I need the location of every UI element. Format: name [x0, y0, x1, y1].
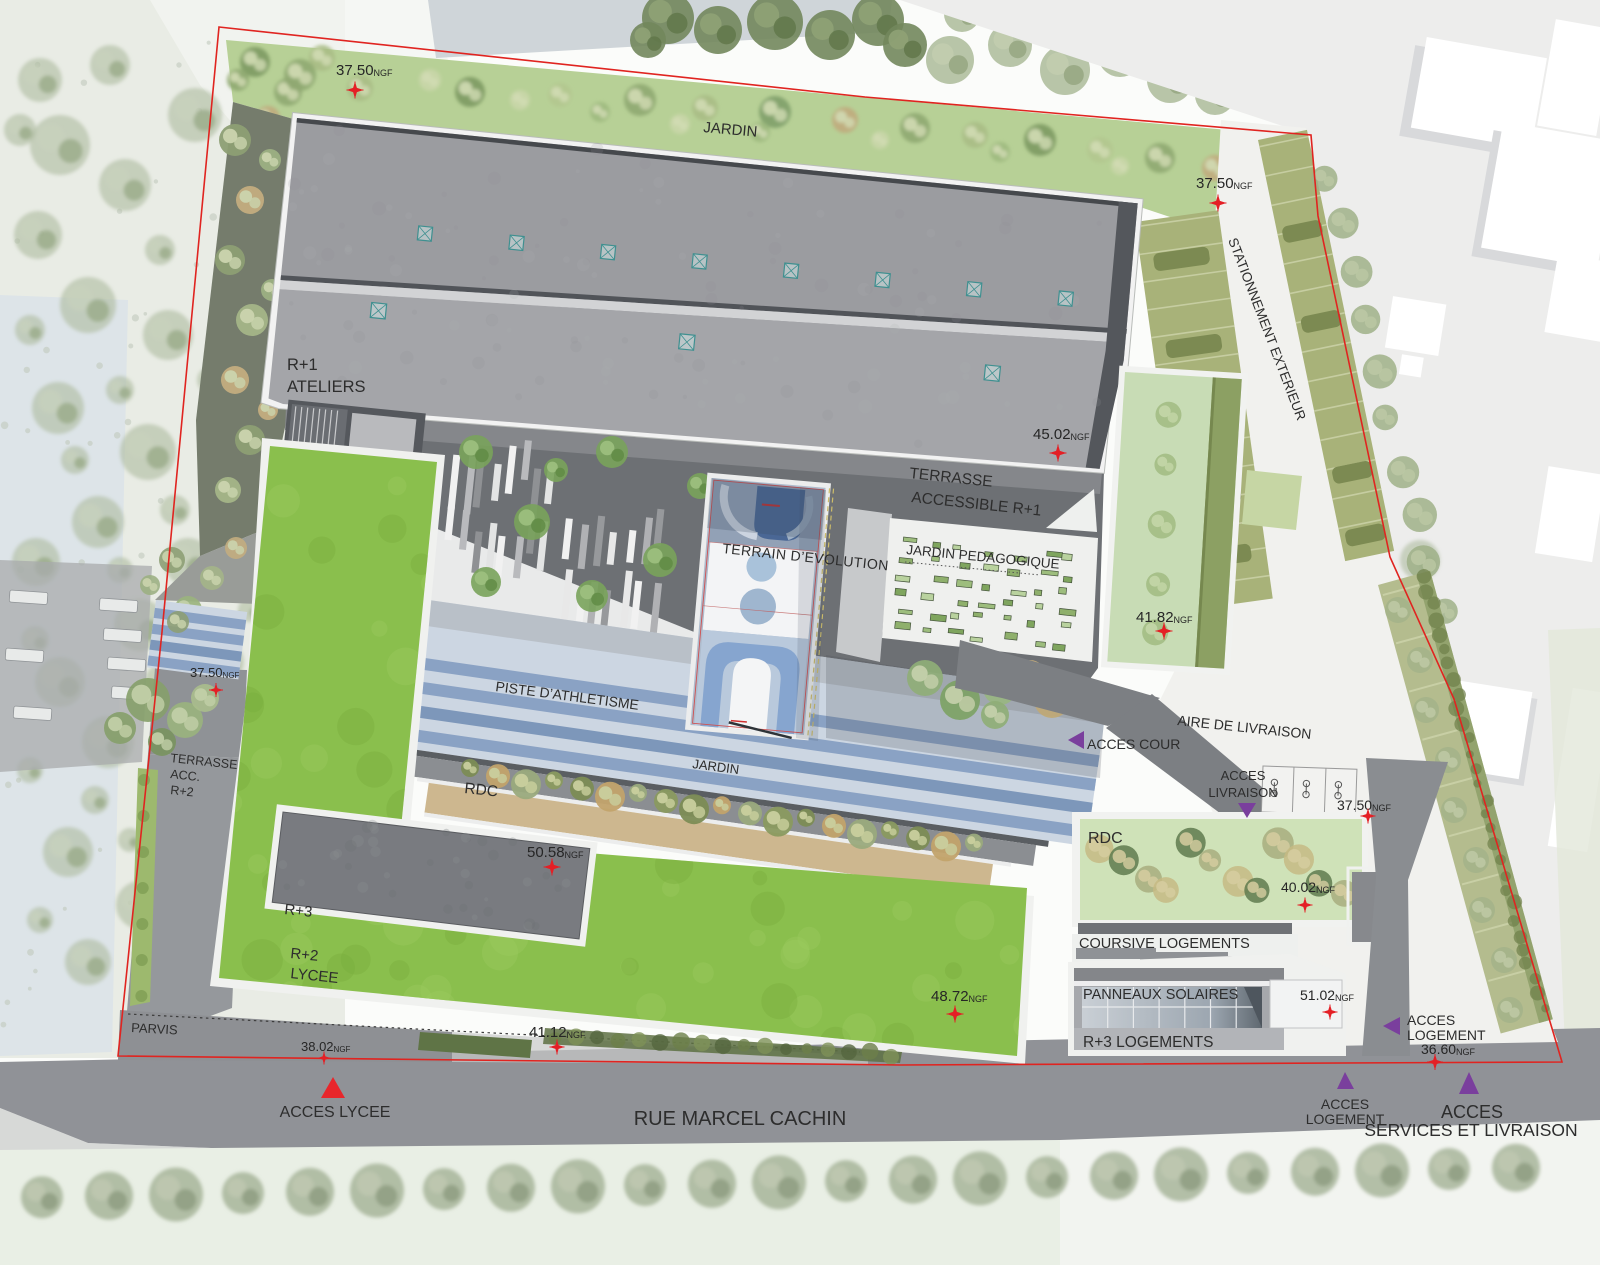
svg-text:LIVRAISON: LIVRAISON [1208, 785, 1277, 800]
svg-text:ACCES: ACCES [1221, 768, 1266, 783]
svg-text:RDC: RDC [464, 780, 499, 800]
svg-text:ACCES COUR: ACCES COUR [1087, 736, 1180, 752]
svg-text:ACCES: ACCES [1321, 1096, 1369, 1112]
svg-text:RUE MARCEL CACHIN: RUE MARCEL CACHIN [634, 1108, 847, 1130]
svg-text:R+3 LOGEMENTS: R+3 LOGEMENTS [1083, 1034, 1214, 1051]
svg-text:SERVICES ET LIVRAISON: SERVICES ET LIVRAISON [1364, 1120, 1577, 1140]
svg-text:ACCES LYCEE: ACCES LYCEE [280, 1104, 391, 1121]
svg-text:R+1: R+1 [287, 356, 318, 374]
svg-text:PANNEAUX SOLAIRES: PANNEAUX SOLAIRES [1083, 987, 1238, 1003]
svg-text:R+2: R+2 [170, 783, 195, 799]
svg-text:LOGEMENT: LOGEMENT [1407, 1027, 1486, 1043]
svg-text:ACCES: ACCES [1441, 1102, 1503, 1122]
svg-text:ACCES: ACCES [1407, 1012, 1455, 1028]
svg-text:ATELIERS: ATELIERS [287, 378, 366, 396]
svg-text:COURSIVE LOGEMENTS: COURSIVE LOGEMENTS [1079, 936, 1250, 952]
svg-text:R+2: R+2 [290, 945, 320, 965]
svg-text:PARVIS: PARVIS [131, 1020, 179, 1037]
svg-text:RDC: RDC [1088, 830, 1123, 847]
svg-text:R+3: R+3 [284, 901, 314, 921]
